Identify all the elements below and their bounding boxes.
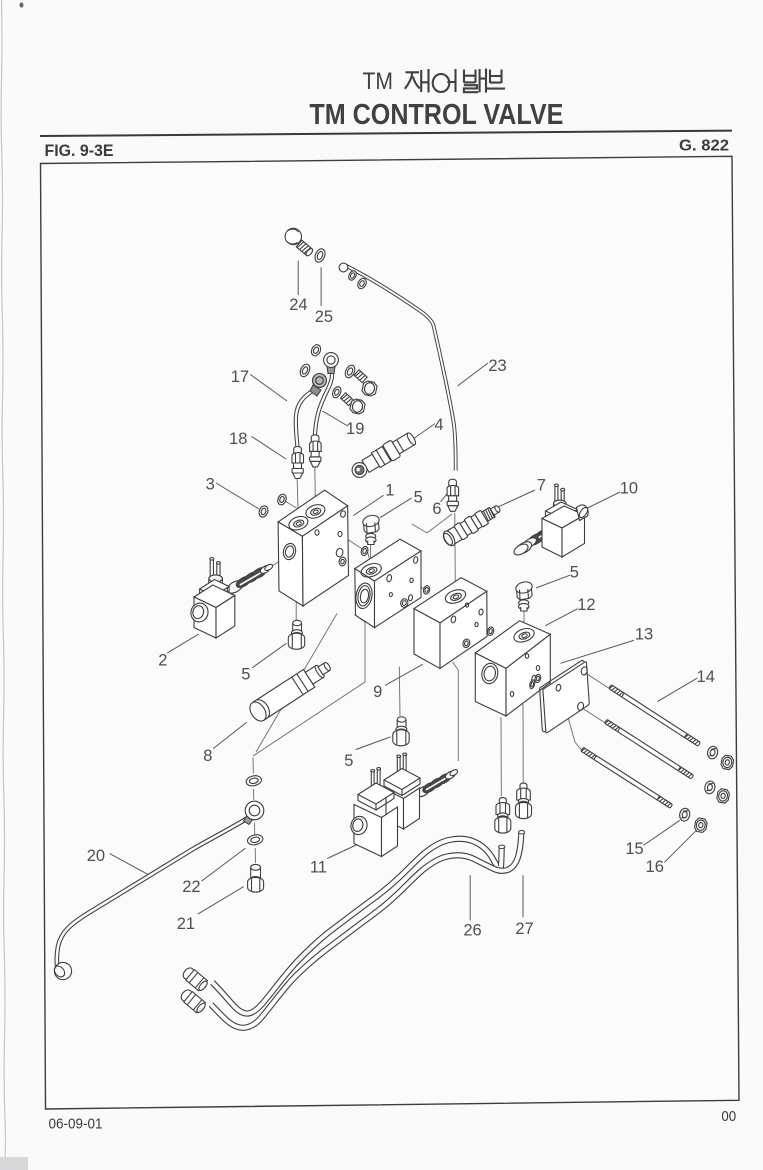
svg-text:5: 5 [344, 752, 353, 770]
svg-text:13: 13 [635, 626, 653, 644]
svg-text:TM: TM [363, 68, 394, 95]
svg-text:6: 6 [432, 500, 441, 518]
svg-text:19: 19 [346, 420, 364, 438]
svg-text:21: 21 [177, 915, 195, 933]
svg-text:20: 20 [87, 847, 105, 865]
svg-text:26: 26 [463, 922, 481, 940]
svg-text:G. 822: G. 822 [679, 138, 729, 155]
svg-text:9: 9 [373, 683, 382, 701]
svg-text:00: 00 [721, 1108, 736, 1125]
svg-text:5: 5 [241, 666, 250, 684]
svg-text:22: 22 [182, 878, 200, 896]
svg-text:25: 25 [315, 308, 333, 326]
svg-text:14: 14 [697, 668, 715, 686]
svg-text:17: 17 [231, 368, 249, 386]
svg-text:2: 2 [158, 652, 167, 670]
svg-text:10: 10 [620, 480, 638, 498]
svg-text:06-09-01: 06-09-01 [49, 1116, 103, 1133]
svg-text:8: 8 [203, 747, 212, 765]
svg-text:24: 24 [289, 296, 307, 314]
svg-text:11: 11 [310, 859, 327, 877]
svg-text:TM CONTROL VALVE: TM CONTROL VALVE [309, 99, 563, 131]
svg-text:15: 15 [625, 840, 643, 858]
svg-text:FIG. 9-3E: FIG. 9-3E [45, 141, 114, 160]
svg-text:5: 5 [570, 564, 579, 582]
svg-text:3: 3 [206, 475, 215, 493]
svg-text:4: 4 [434, 416, 443, 434]
svg-text:23: 23 [488, 357, 506, 375]
svg-text:27: 27 [515, 920, 533, 938]
svg-text:7: 7 [537, 477, 546, 495]
svg-text:5: 5 [414, 489, 423, 507]
svg-text:16: 16 [646, 858, 664, 876]
svg-text:1: 1 [385, 482, 394, 500]
svg-text:18: 18 [229, 430, 247, 448]
svg-text:12: 12 [577, 596, 595, 614]
